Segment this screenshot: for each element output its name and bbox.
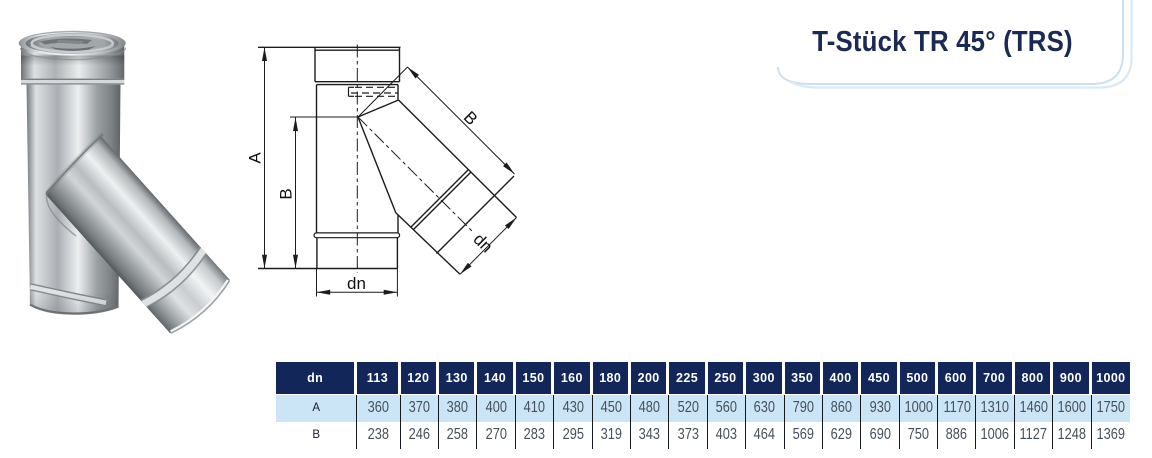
svg-text:B: B: [277, 188, 296, 199]
svg-text:B: B: [460, 108, 481, 129]
svg-text:dn: dn: [470, 230, 497, 257]
svg-text:A: A: [246, 152, 265, 164]
svg-text:dn: dn: [347, 274, 366, 293]
